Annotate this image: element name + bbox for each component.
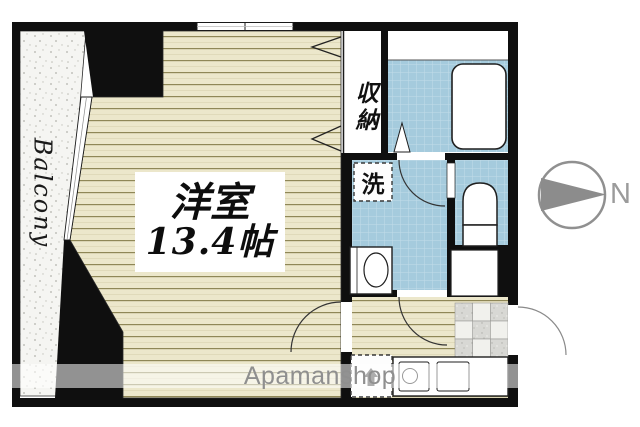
room-size: 13.4帖 xyxy=(146,224,275,262)
floor-plan: Balcony 洋室 13.4帖 収納 洗 N Apamanshop xyxy=(0,0,640,427)
room-label: 洋室 13.4帖 xyxy=(135,172,285,272)
room-door-opening xyxy=(341,302,352,352)
closet-label: 収納 xyxy=(349,52,379,164)
entrance-tiles xyxy=(455,303,508,357)
top-window xyxy=(197,23,293,31)
watermark-text: Apamanshop xyxy=(244,364,396,388)
bathtub xyxy=(452,64,506,149)
bathroom xyxy=(388,31,508,152)
north-label: N xyxy=(610,178,640,210)
washbasin xyxy=(350,247,392,294)
toilet xyxy=(463,183,497,246)
washer-label: 洗 xyxy=(354,163,392,201)
compass xyxy=(539,162,606,228)
room-name: 洋室 xyxy=(170,182,250,224)
entrance-storage xyxy=(451,250,498,296)
bathroom-door-opening xyxy=(397,153,445,160)
front-door-arc xyxy=(518,307,566,355)
balcony-label: Balcony xyxy=(31,91,57,296)
front-door-opening xyxy=(508,305,518,355)
toilet-door-opening xyxy=(447,163,455,198)
washroom-door-opening xyxy=(397,290,447,297)
watermark-band: Apamanshop xyxy=(0,364,640,388)
north-needle-icon xyxy=(541,178,606,211)
